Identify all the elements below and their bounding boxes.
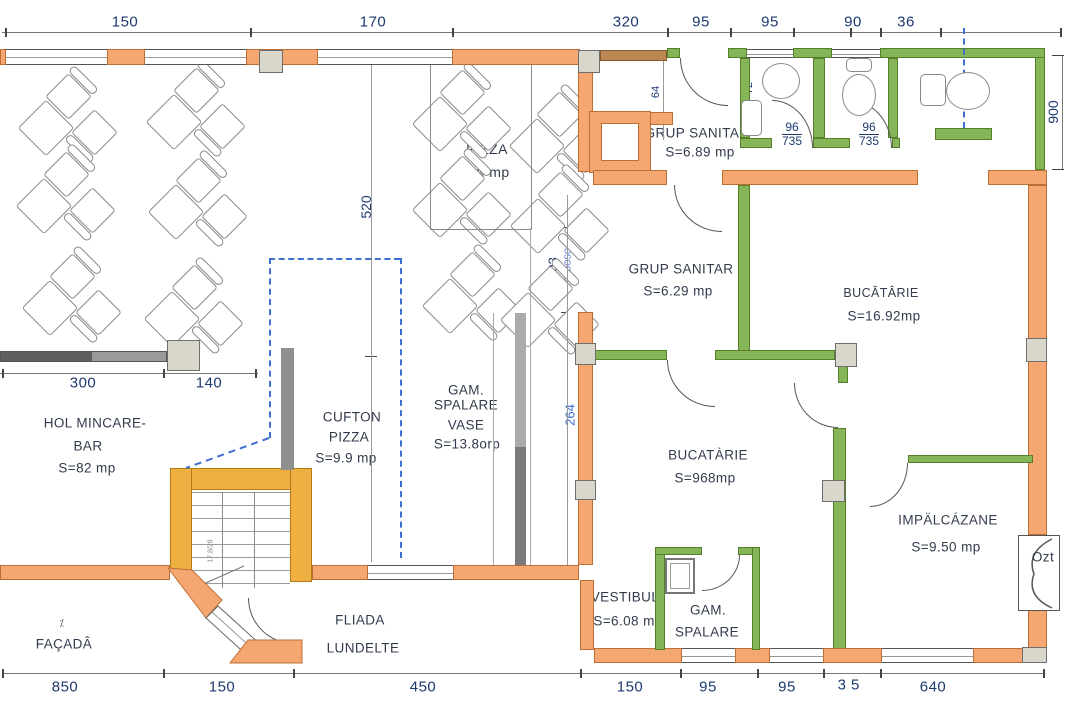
room-divider-line [530,228,531,565]
door-arc [248,598,294,644]
column [835,343,857,367]
tick [452,28,454,37]
column [575,343,596,365]
wall-segment [715,350,835,360]
dashed-guide [269,258,400,260]
tick [850,28,852,37]
chair [197,300,244,347]
column [1022,647,1047,663]
tick [293,669,295,678]
toilet-bowl [842,74,876,116]
dim-label: 320 [613,14,640,31]
room-area: S=16.92mp [847,309,920,324]
column [259,50,283,73]
room-label: HOL MINCARE- [44,416,147,431]
dim-label: 36 [897,14,915,31]
wall-segment [838,365,848,383]
room-label: BUCATÀRIE [668,448,748,463]
wall-segment [722,170,918,185]
room-label: BUCĂTÂRIE [843,286,918,300]
room-label: GRUP SANITAR [629,262,734,277]
chair [75,289,122,336]
door-arc [794,383,838,428]
extension-line-64 [663,58,664,140]
extension-line-203-264 [567,195,568,565]
dim-label: 64 [650,86,662,98]
wall-segment [740,138,772,148]
tick [580,669,582,678]
dim-label: 640 [920,679,947,696]
tick [940,28,942,37]
dim-label: 95 [761,14,779,31]
tick [163,369,165,378]
window [6,49,107,65]
wall-segment [0,565,170,580]
tick [1043,669,1045,678]
sink-pedestal [741,100,762,136]
room-area: S=13.8orp [434,437,500,452]
window [747,49,793,58]
chair [563,207,610,254]
window [770,648,823,663]
facade-mark: ⁒ [60,619,65,630]
window [882,648,973,663]
wall-segment [892,138,900,148]
tick [1060,28,1062,37]
room-label: SPALARE [434,398,498,413]
window [682,648,735,663]
room-label: VESTIBUL [591,590,659,605]
wash-basin [665,558,695,594]
tick [730,28,732,37]
room-label: FLIADA [335,613,385,628]
dim-line-top [2,32,1062,33]
room-label: FAÇADÂ [36,637,92,652]
dim-line-right [1062,55,1063,170]
wall-segment [107,49,145,65]
tick [5,28,7,37]
column [578,50,600,73]
tick [880,28,882,37]
dim-label: 900 [1045,100,1061,123]
stair-divider [254,492,255,588]
counter-bar [515,313,526,447]
floor-plan: 150 170 320 95 95 90 36 300 140 850 150 … [0,0,1080,720]
wall-segment [593,350,667,360]
bar-counter [0,351,167,362]
toilet-tank [846,58,872,72]
room-label: LUNDELTE [327,641,400,656]
wall-segment [1035,57,1045,170]
counter-bar [515,447,526,565]
window [368,565,453,580]
wall-segment [823,648,882,663]
wall-segment [813,58,825,138]
toilet-bowl [946,72,990,110]
dim-label: 150 [112,14,139,31]
dim-label: 95 [692,14,710,31]
tick [757,669,759,678]
dim-label: 35 [838,677,865,694]
wall-segment [728,48,747,58]
room-area: S=9.9 mp [315,451,376,466]
wall-segment [655,547,702,555]
wall-segment [833,428,846,650]
dim-label: 140 [196,375,223,392]
dim-label: 264 [563,404,578,426]
room-area: S=968mp [675,471,736,486]
room-area: S=9.50 mp [911,540,980,555]
wall-segment [650,112,673,125]
dim-label: 95 [778,679,796,696]
wall-segment [888,58,898,138]
tick [255,369,257,378]
bar-end-block [167,340,200,371]
dim-label: 150 [209,679,236,696]
room-label: GRUP SANITAR [645,126,750,141]
tick [163,669,165,678]
door-arc [702,555,740,591]
flue-bar [281,348,294,470]
room-label: PIZZA [329,430,369,445]
stairwell-wall [290,468,312,582]
wall-segment [988,170,1047,185]
room-area: S=6.89 mp [665,145,734,160]
room-label: GAM. [448,383,484,398]
door-label: Ozt [1032,550,1054,565]
wall-segment [655,547,665,650]
column [575,480,596,500]
wall-segment-brown [600,50,667,61]
wall-segment [580,580,594,650]
tick [793,28,795,37]
dim-label: 170 [360,14,387,31]
dim-line-bottom [2,673,1045,674]
room-outline-hol-pizza [430,64,532,230]
door-arc [772,100,813,148]
tick [1052,169,1064,170]
dim-label: 150 [617,679,644,696]
room-label: SPALARE [675,625,739,640]
door-ozt-panel [1018,535,1060,611]
wall-segment [593,170,667,185]
wall-segment [453,565,579,580]
shaft [590,112,650,172]
extension-line-520 [371,65,372,562]
toilet-tank [920,74,946,106]
dim-label: 90 [844,14,862,31]
room-label: BAR [74,439,103,454]
column [1026,338,1047,362]
column [822,480,845,502]
tick [2,369,4,378]
door-arc [680,58,728,106]
wall-segment [738,185,750,360]
wall-segment [908,455,1033,463]
room-area: S=6.08 mp [593,614,662,629]
chair [69,187,116,234]
wall-segment [813,138,850,148]
door-arc [674,185,722,232]
wall-segment [935,128,992,140]
chair [199,103,246,150]
room-label: CUFTON [323,410,381,425]
dashed-guide [400,258,402,558]
dim-label: 95 [699,679,717,696]
wall-segment [312,565,368,580]
door-arc [667,360,715,407]
dim-label: 300 [70,375,97,392]
tick [1052,55,1064,56]
stair-divider [222,492,223,588]
dashed-guide [269,258,271,438]
tick [2,669,4,678]
tick [680,669,682,678]
wall-segment [752,547,760,650]
room-area: S=6.29 mp [643,284,712,299]
room-label: VASE [448,418,485,433]
room-area: S=82 mp [58,461,115,476]
dim-label: 850 [52,679,79,696]
door-arc [870,463,908,507]
tick [250,28,252,37]
wall-segment [594,648,682,663]
stairs [192,492,290,589]
wall-segment [452,49,580,65]
window [832,49,880,58]
wall-segment [667,48,680,58]
chair [201,193,248,240]
room-label: GAM. [690,603,726,618]
dim-label: 450 [410,679,437,696]
tick [667,28,669,37]
tick [823,669,825,678]
window [145,49,246,65]
wall-segment [793,48,832,58]
stairwell-wall [170,468,192,572]
tick [880,669,882,678]
wall-segment [735,648,770,663]
room-divider-line [493,313,494,565]
window [318,49,452,65]
sink [762,63,800,99]
room-label: IMPÄLCÁZANE [898,513,998,528]
